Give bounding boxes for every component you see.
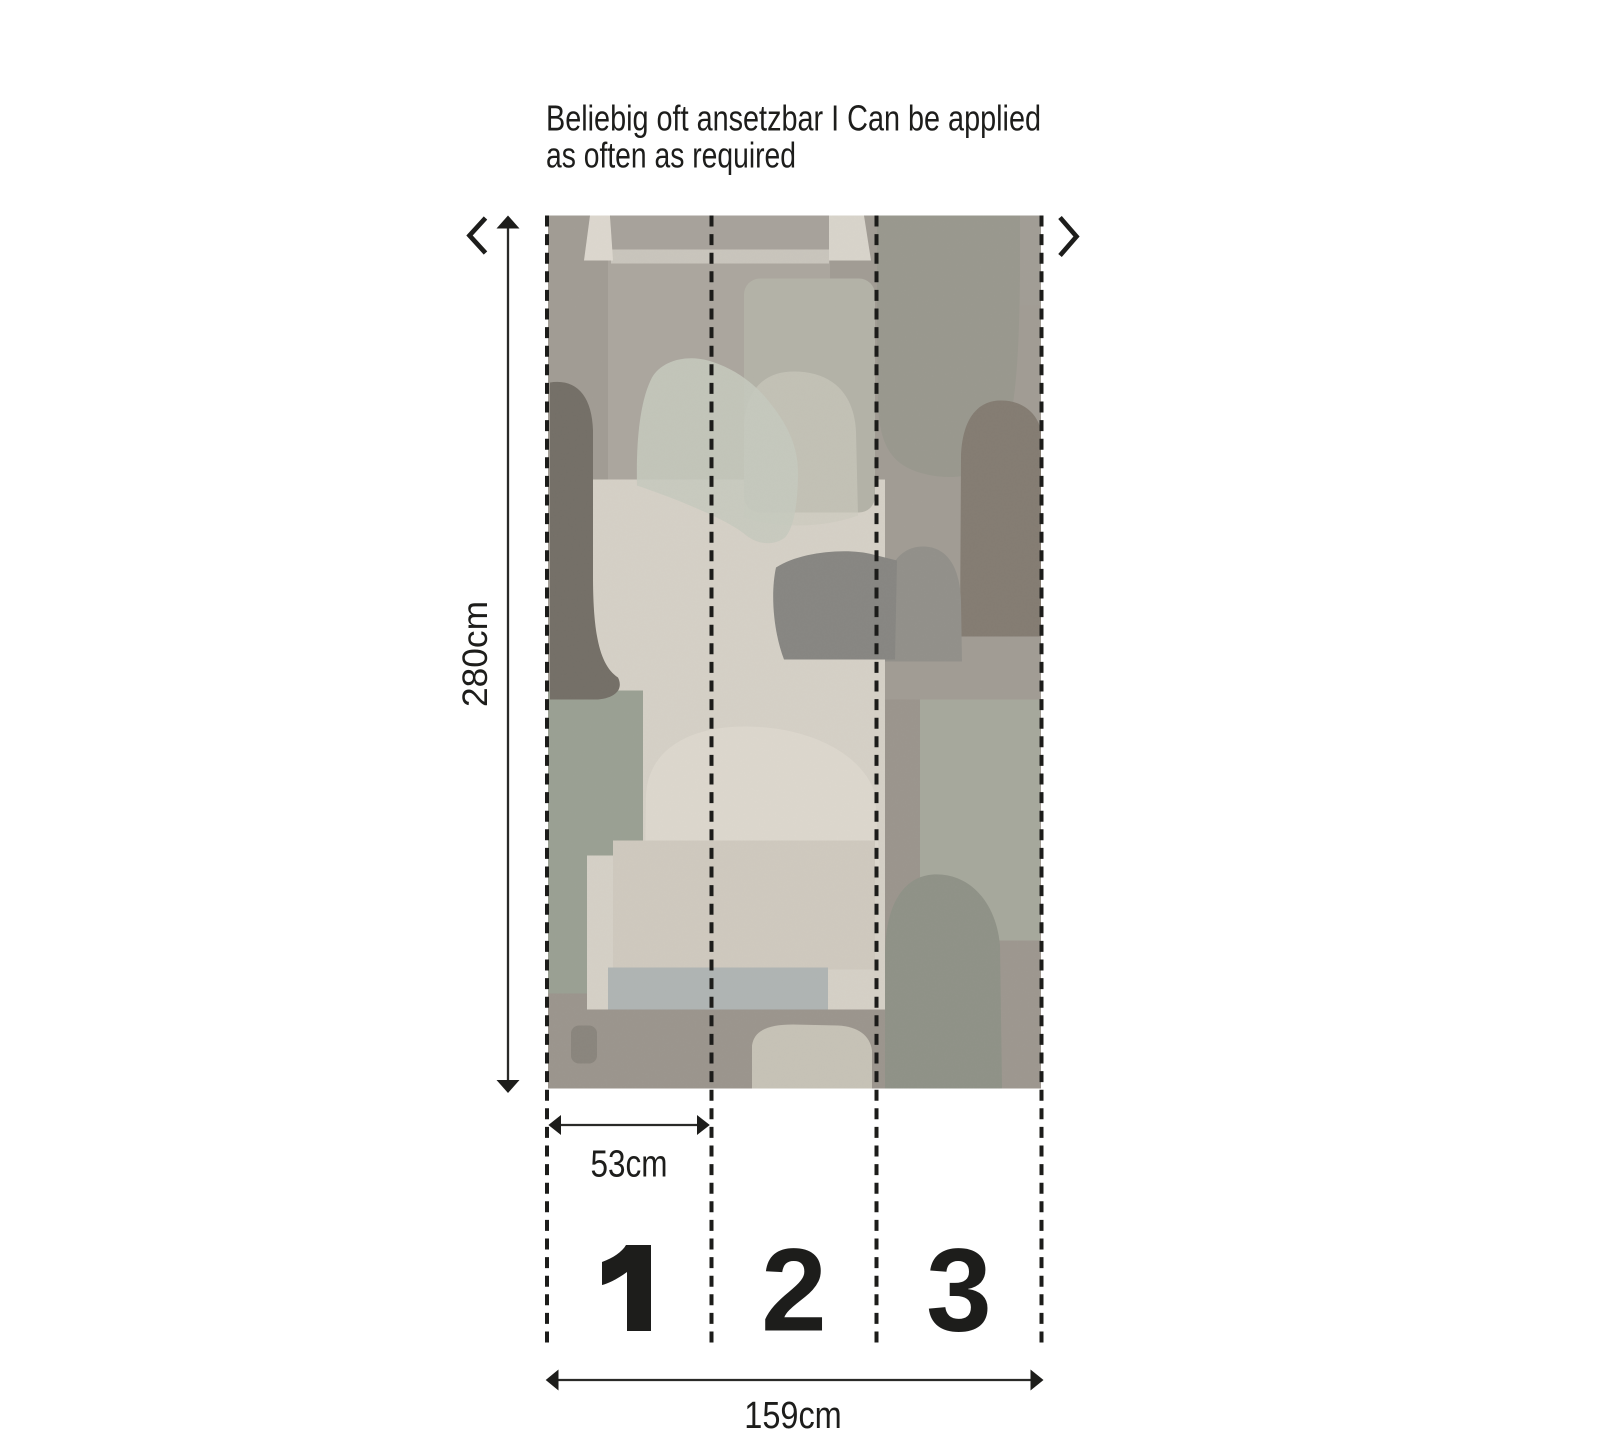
- svg-text:53cm: 53cm: [591, 1144, 668, 1186]
- svg-text:Beliebig oft ansetzbar I Can b: Beliebig oft ansetzbar I Can be applied: [546, 98, 1041, 139]
- svg-text:280cm: 280cm: [455, 601, 495, 707]
- svg-text:3: 3: [926, 1225, 992, 1357]
- svg-text:as often as required: as often as required: [546, 135, 796, 176]
- svg-text:159cm: 159cm: [744, 1395, 842, 1437]
- svg-text:2: 2: [761, 1225, 827, 1357]
